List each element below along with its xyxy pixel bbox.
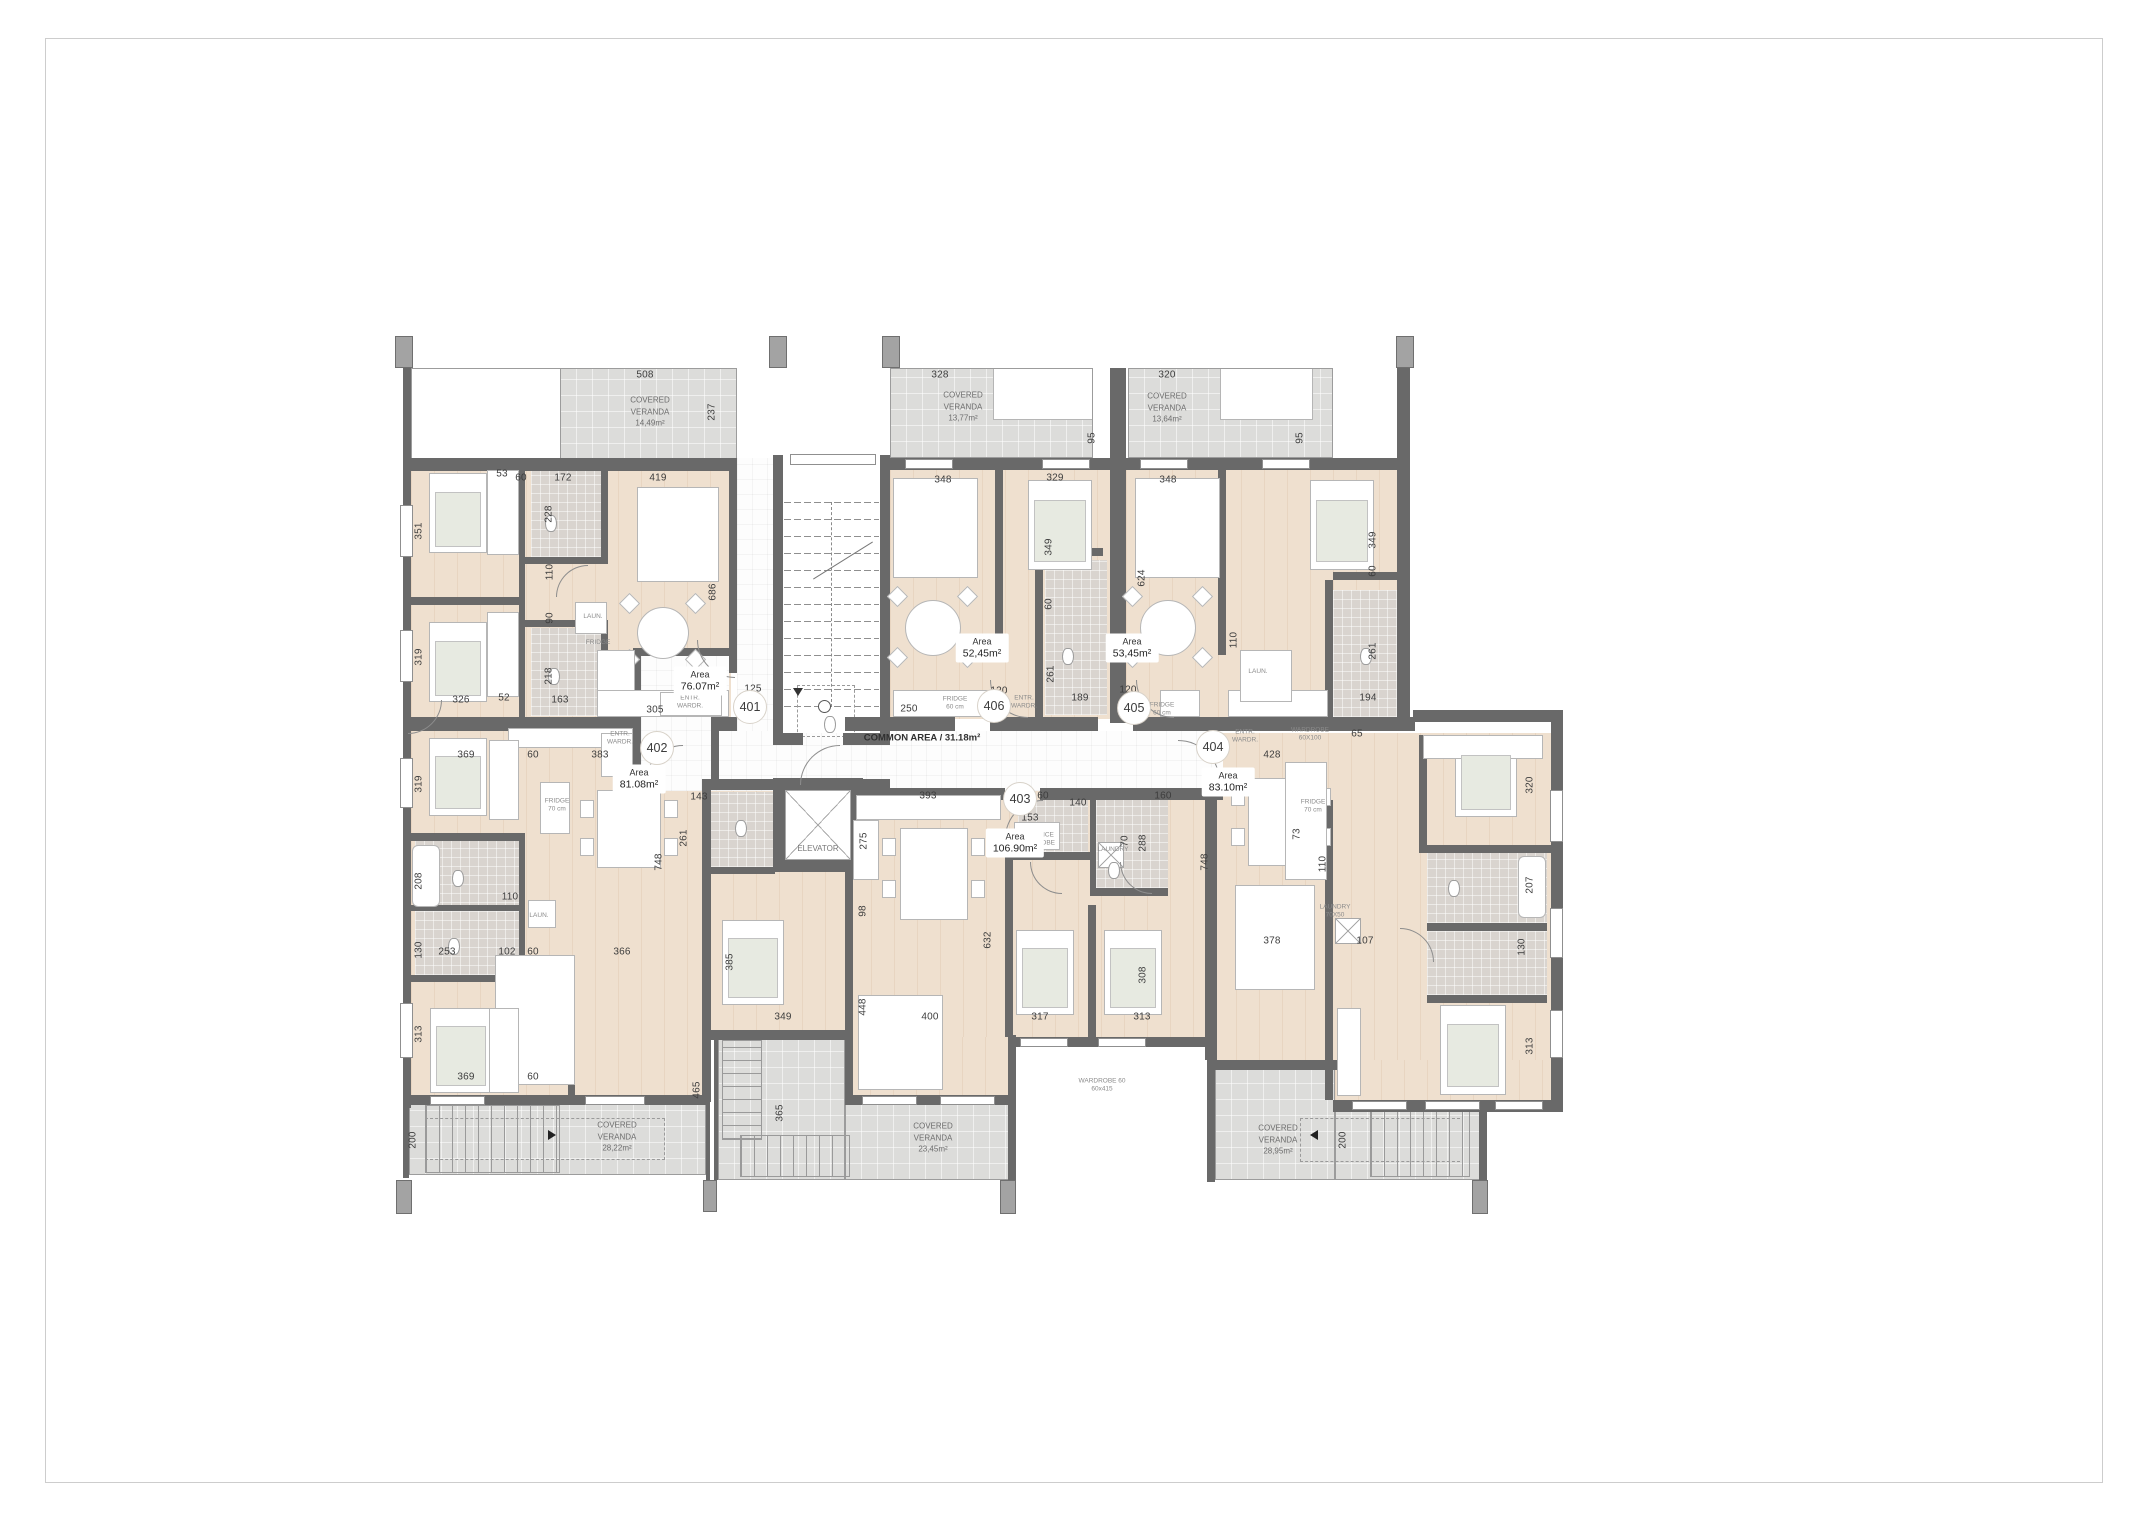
dimension-label: 130 <box>414 941 425 958</box>
column <box>703 1180 717 1212</box>
area-word: Area <box>993 832 1037 842</box>
wall <box>845 872 853 1105</box>
dimension-label: 428 <box>1263 750 1280 761</box>
wall <box>1088 905 1096 1037</box>
dimension-label: 60 <box>527 947 539 958</box>
window <box>400 758 413 808</box>
column <box>1396 336 1414 368</box>
toilet <box>1448 880 1460 897</box>
column <box>1472 1180 1488 1214</box>
fixture-label: WARDROBE 60X100 <box>1291 727 1329 744</box>
area-value: 83.10m² <box>1209 782 1248 794</box>
unit-number-badge: 403 <box>1003 782 1037 816</box>
fixture-label: ENTR. WARDR. <box>1011 695 1037 712</box>
wall <box>1207 1060 1215 1182</box>
dimension-label: 320 <box>1525 776 1536 793</box>
fixture-label: LAUN. <box>529 912 548 920</box>
mattress <box>728 938 778 998</box>
dimension-label: 140 <box>1069 798 1086 809</box>
veranda-label: COVERED VERANDA 28,95m² <box>1258 1123 1298 1158</box>
wall <box>1110 368 1126 723</box>
mattress <box>1316 500 1368 562</box>
veranda-stairs <box>740 1135 850 1177</box>
dimension-label: 107 <box>1356 936 1373 947</box>
wall <box>773 455 783 745</box>
dimension-label: 326 <box>452 695 469 706</box>
stairs-arrow <box>548 1130 556 1140</box>
wall <box>1133 717 1415 731</box>
wall <box>714 1035 718 1180</box>
fixture-label: LAUN. <box>1248 668 1267 676</box>
floor-plan-sheet: 5082373289532095601724195334832934835122… <box>0 0 2149 1523</box>
chair <box>664 838 678 856</box>
wardrobe <box>487 612 519 697</box>
dining-table <box>637 607 689 659</box>
dimension-label: 110 <box>1318 856 1329 873</box>
dimension-label: 261 <box>1046 665 1057 682</box>
dimension-label: 60 <box>527 750 539 761</box>
window <box>1550 1010 1563 1058</box>
dimension-label: 313 <box>414 1025 425 1042</box>
fixture-label: FRIDGE 60 cm <box>943 696 968 713</box>
wardrobe <box>487 470 519 555</box>
column <box>396 1180 412 1214</box>
window <box>1352 1101 1407 1110</box>
veranda-stairs-dashed <box>1300 1118 1460 1162</box>
wheelchair-icon <box>818 700 831 713</box>
dimension-label: 465 <box>692 1081 703 1098</box>
fixture-label: LAUNDRY <box>1098 846 1129 854</box>
dimension-label: 60 <box>515 473 527 484</box>
fixture-label: LAUN. <box>583 613 602 621</box>
area-word: Area <box>620 768 659 778</box>
window <box>1425 1101 1480 1110</box>
dimension-label: 349 <box>1368 531 1379 548</box>
area-label: Area76.07m² <box>674 667 727 696</box>
toilet <box>452 870 464 887</box>
area-value: 106.90m² <box>993 843 1037 855</box>
veranda-label: COVERED VERANDA 14,49m² <box>630 395 670 430</box>
window <box>1098 1038 1146 1047</box>
wall <box>601 467 608 562</box>
wall <box>990 717 1098 731</box>
wall <box>519 467 525 717</box>
wall <box>403 365 411 1108</box>
area-label: Area52,45m² <box>956 634 1009 663</box>
dimension-label: 60 <box>1037 791 1049 802</box>
wall <box>1090 888 1168 896</box>
wardrobe <box>489 740 519 820</box>
wall <box>1397 368 1410 723</box>
area-value: 52,45m² <box>963 648 1002 660</box>
dimension-label: 400 <box>921 1012 938 1023</box>
veranda-outline <box>890 368 1093 458</box>
dimension-label: 70 <box>1120 835 1131 847</box>
dimension-label: 130 <box>1517 938 1528 955</box>
toilet <box>824 716 836 733</box>
dimension-label: 748 <box>1200 853 1211 870</box>
dimension-label: 261 <box>679 829 690 846</box>
window <box>1495 1101 1543 1110</box>
dimension-label: 53 <box>496 469 508 480</box>
dimension-label: 73 <box>1292 828 1303 840</box>
dimension-label: 320 <box>1158 370 1175 381</box>
dimension-label: 95 <box>1295 432 1306 444</box>
dimension-label: 348 <box>934 475 951 486</box>
unit-number-badge: 405 <box>1117 691 1151 725</box>
wall <box>711 731 719 779</box>
window <box>1042 459 1090 469</box>
wall <box>773 733 803 745</box>
window <box>1550 790 1563 842</box>
wall <box>702 1030 853 1040</box>
dimension-label: 317 <box>1031 1012 1048 1023</box>
sofa <box>893 478 978 578</box>
dimension-label: 163 <box>551 695 568 706</box>
chair <box>580 838 594 856</box>
window <box>400 630 413 682</box>
area-label: Area53,45m² <box>1106 634 1159 663</box>
fixture-label: ENTR. WARDR. <box>677 695 703 712</box>
dimension-label: 319 <box>414 648 425 665</box>
dining-table <box>900 828 968 920</box>
wall <box>1427 995 1547 1003</box>
dimension-label: 102 <box>498 947 515 958</box>
wall <box>1419 845 1555 853</box>
wall <box>1479 1103 1487 1182</box>
window <box>790 454 876 465</box>
chair <box>971 880 985 898</box>
dimension-label: 319 <box>414 775 425 792</box>
dimension-label: 632 <box>983 931 994 948</box>
dimension-label: 194 <box>1359 693 1376 704</box>
wall <box>1008 1035 1016 1180</box>
window <box>1262 459 1310 469</box>
area-value: 53,45m² <box>1113 648 1152 660</box>
wall <box>845 717 955 731</box>
dimension-label: 385 <box>725 953 736 970</box>
column <box>395 336 413 368</box>
wall <box>403 458 737 471</box>
sofa <box>637 487 719 582</box>
dimension-label: 200 <box>408 1131 419 1148</box>
dimension-label: 348 <box>1159 475 1176 486</box>
wall <box>702 779 775 790</box>
wall <box>1205 793 1217 1060</box>
dimension-label: 313 <box>1525 1037 1536 1054</box>
dimension-label: 253 <box>438 947 455 958</box>
mattress <box>1034 500 1086 562</box>
dimension-label: 110 <box>545 564 556 581</box>
unit-number-badge: 406 <box>977 689 1011 723</box>
open-terrace <box>411 368 561 459</box>
window <box>940 1096 995 1105</box>
fixture-label: ENTR. WARDR. <box>607 731 633 748</box>
fixture-label: FRIDGE 60 cm <box>1150 702 1175 719</box>
veranda-label: COVERED VERANDA 28,22m² <box>597 1120 637 1155</box>
mattress <box>435 492 481 547</box>
dimension-label: 366 <box>613 947 630 958</box>
area-label: Area83.10m² <box>1202 768 1255 797</box>
mattress <box>1022 948 1068 1008</box>
common-area-label: COMMON AREA / 31.18m² <box>864 733 980 744</box>
wall <box>411 833 523 841</box>
area-value: 76.07m² <box>681 681 720 693</box>
unit-number-badge: 404 <box>1196 730 1230 764</box>
dimension-label: 160 <box>1154 791 1171 802</box>
dimension-label: 52 <box>498 693 510 704</box>
window <box>400 505 413 557</box>
dimension-label: 110 <box>502 892 519 903</box>
fixture-label: FRIDGE 70 cm <box>1301 799 1326 816</box>
area-word: Area <box>1113 637 1152 647</box>
veranda-stairs <box>722 1040 762 1140</box>
area-word: Area <box>1209 771 1248 781</box>
mattress <box>1110 948 1156 1008</box>
dimension-label: 208 <box>414 872 425 889</box>
unit-number-badge: 401 <box>733 690 767 724</box>
mattress <box>435 756 481 809</box>
dimension-label: 110 <box>1229 632 1240 649</box>
area-word: Area <box>681 670 720 680</box>
window <box>585 1096 645 1105</box>
dimension-label: 98 <box>858 905 869 917</box>
veranda-label: COVERED VERANDA 13,77m² <box>943 390 983 425</box>
chair <box>1231 828 1245 846</box>
dimension-label: 250 <box>900 704 917 715</box>
area-label: Area106.90m² <box>986 829 1044 858</box>
kitchen-counter <box>597 650 635 695</box>
fixture-label: FRIDGE 70 cm <box>545 798 570 815</box>
dimension-label: 351 <box>414 522 425 539</box>
wardrobe <box>489 1008 519 1093</box>
dimension-label: 60 <box>1368 565 1379 577</box>
chair <box>882 880 896 898</box>
wardrobe <box>1337 1008 1361 1096</box>
stairs-divider <box>831 502 832 707</box>
dimension-label: 275 <box>859 832 870 849</box>
mattress <box>1461 755 1511 810</box>
wall <box>1040 788 1223 800</box>
window <box>430 1096 485 1105</box>
dimension-label: 95 <box>1087 432 1098 444</box>
area-word: Area <box>963 637 1002 647</box>
dimension-label: 365 <box>775 1104 786 1121</box>
wall <box>523 557 608 564</box>
fixture-label: WARDROBE 60 60x415 <box>1078 1078 1125 1095</box>
dimension-label: 228 <box>544 505 555 522</box>
fixture-label: ELEVATOR <box>797 844 838 854</box>
sofa <box>1135 478 1220 578</box>
column <box>882 336 900 368</box>
dimension-label: 349 <box>1044 538 1055 555</box>
dimension-label: 60 <box>527 1072 539 1083</box>
dimension-label: 686 <box>708 583 719 600</box>
dimension-label: 237 <box>707 403 718 420</box>
dimension-label: 328 <box>931 370 948 381</box>
dimension-label: 172 <box>554 473 571 484</box>
stairs-arrow <box>1310 1130 1318 1140</box>
dimension-label: 305 <box>646 705 663 716</box>
wall <box>880 455 890 745</box>
dimension-label: 189 <box>1071 693 1088 704</box>
area-label: Area81.08m² <box>613 765 666 794</box>
window <box>1550 908 1563 958</box>
window <box>1020 1038 1068 1047</box>
chair <box>580 800 594 818</box>
chair <box>882 838 896 856</box>
dimension-label: 308 <box>1138 966 1149 983</box>
dimension-label: 378 <box>1263 936 1280 947</box>
toilet <box>735 820 747 837</box>
column <box>1000 1180 1016 1214</box>
stairs-arrow <box>793 688 803 696</box>
dimension-label: 313 <box>1133 1012 1150 1023</box>
dimension-label: 448 <box>858 998 869 1015</box>
dimension-label: 90 <box>545 612 556 624</box>
dimension-label: 60 <box>1044 598 1055 610</box>
wall <box>1427 923 1547 931</box>
wall <box>995 462 1003 655</box>
dimension-label: 207 <box>1525 876 1536 893</box>
unit-number-badge: 402 <box>640 731 674 765</box>
dimension-label: 349 <box>774 1012 791 1023</box>
wall <box>1413 710 1563 722</box>
wall <box>710 867 775 874</box>
fixture-label: ENTR. WARDR. <box>1232 729 1258 746</box>
wall <box>411 597 521 605</box>
dimension-label: 218 <box>544 667 555 684</box>
dimension-label: 393 <box>919 791 936 802</box>
wall <box>1090 800 1096 895</box>
window <box>400 1003 413 1058</box>
window <box>1140 459 1188 469</box>
fixture-label: LAUNDRY 70X50 <box>1320 904 1351 921</box>
dimension-label: 261 <box>1368 642 1379 659</box>
wall <box>1213 1060 1339 1070</box>
chair <box>664 800 678 818</box>
dimension-label: 624 <box>1137 569 1148 586</box>
dimension-label: 369 <box>457 1072 474 1083</box>
veranda-label: COVERED VERANDA 13,64m² <box>1147 391 1187 426</box>
wall <box>711 717 737 731</box>
chair <box>971 838 985 856</box>
area-value: 81.08m² <box>620 779 659 791</box>
dimension-label: 200 <box>1338 1131 1349 1148</box>
wall <box>706 1035 710 1180</box>
fixture-label: FRIDGE <box>586 639 611 647</box>
window <box>862 1096 917 1105</box>
wall <box>1005 852 1013 1037</box>
mattress <box>1447 1024 1499 1087</box>
sofa <box>858 995 943 1090</box>
column <box>769 336 787 368</box>
dining-table <box>905 600 961 656</box>
toilet <box>1108 862 1120 879</box>
toilet <box>1062 648 1074 665</box>
mattress <box>435 641 481 696</box>
dimension-label: 383 <box>591 750 608 761</box>
dimension-label: 748 <box>654 853 665 870</box>
dimension-label: 419 <box>649 473 666 484</box>
dimension-label: 508 <box>636 370 653 381</box>
kitchen-counter <box>853 820 879 880</box>
dimension-label: 329 <box>1046 473 1063 484</box>
dimension-label: 143 <box>690 792 707 803</box>
dining-table <box>597 790 661 868</box>
window <box>905 459 953 469</box>
veranda-label: COVERED VERANDA 23,45m² <box>913 1121 953 1156</box>
dimension-label: 65 <box>1351 729 1363 740</box>
dimension-label: 288 <box>1138 834 1149 851</box>
dimension-label: 369 <box>457 750 474 761</box>
